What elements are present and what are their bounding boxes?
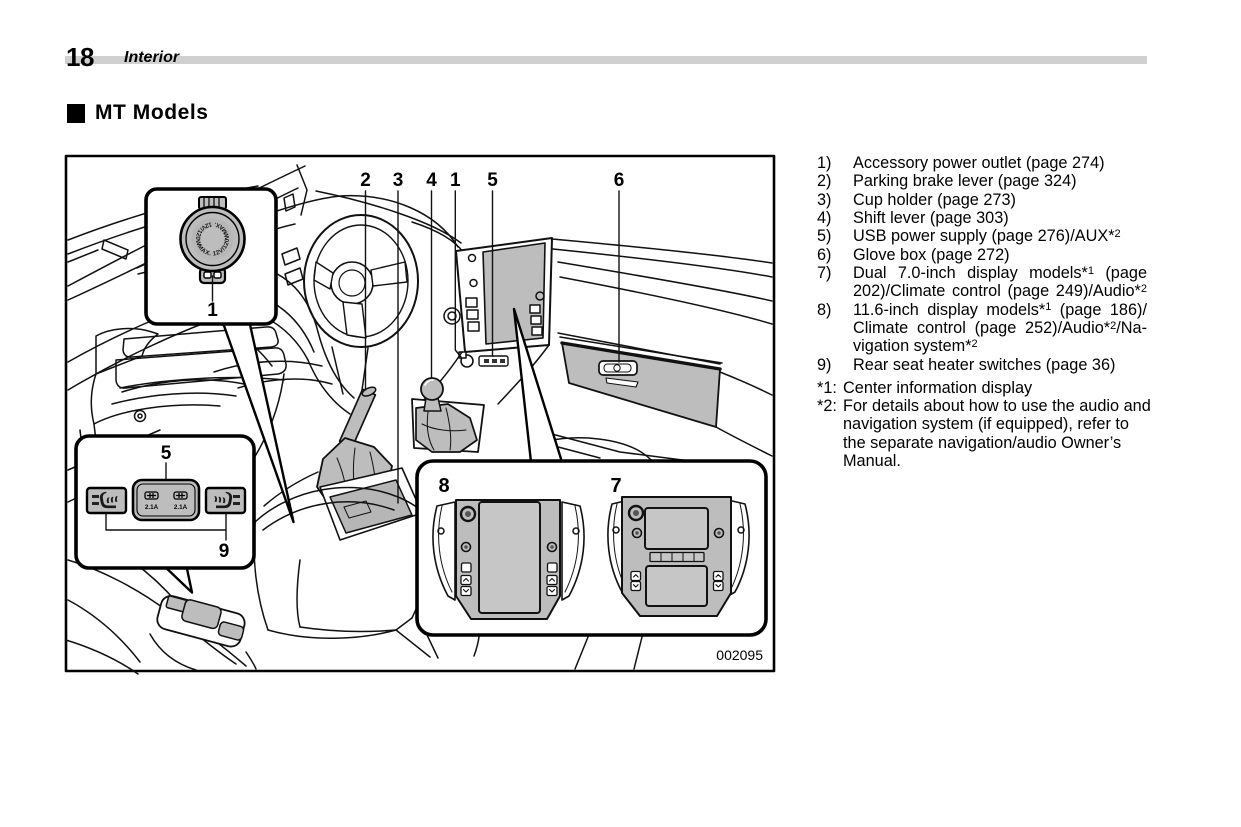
- svg-text:2: 2: [360, 170, 371, 191]
- svg-text:4: 4: [426, 170, 437, 191]
- svg-text:5: 5: [161, 443, 172, 464]
- svg-text:7: 7: [610, 475, 621, 497]
- svg-text:5: 5: [487, 170, 498, 191]
- svg-text:1: 1: [450, 170, 461, 191]
- svg-text:002095: 002095: [716, 647, 763, 663]
- svg-text:3: 3: [393, 170, 404, 191]
- svg-text:1: 1: [207, 300, 218, 321]
- svg-text:8: 8: [438, 475, 449, 497]
- svg-text:9: 9: [219, 541, 230, 562]
- svg-text:2.1A: 2.1A: [174, 504, 188, 511]
- svg-text:2.1A: 2.1A: [145, 504, 159, 511]
- svg-text:6: 6: [614, 170, 625, 191]
